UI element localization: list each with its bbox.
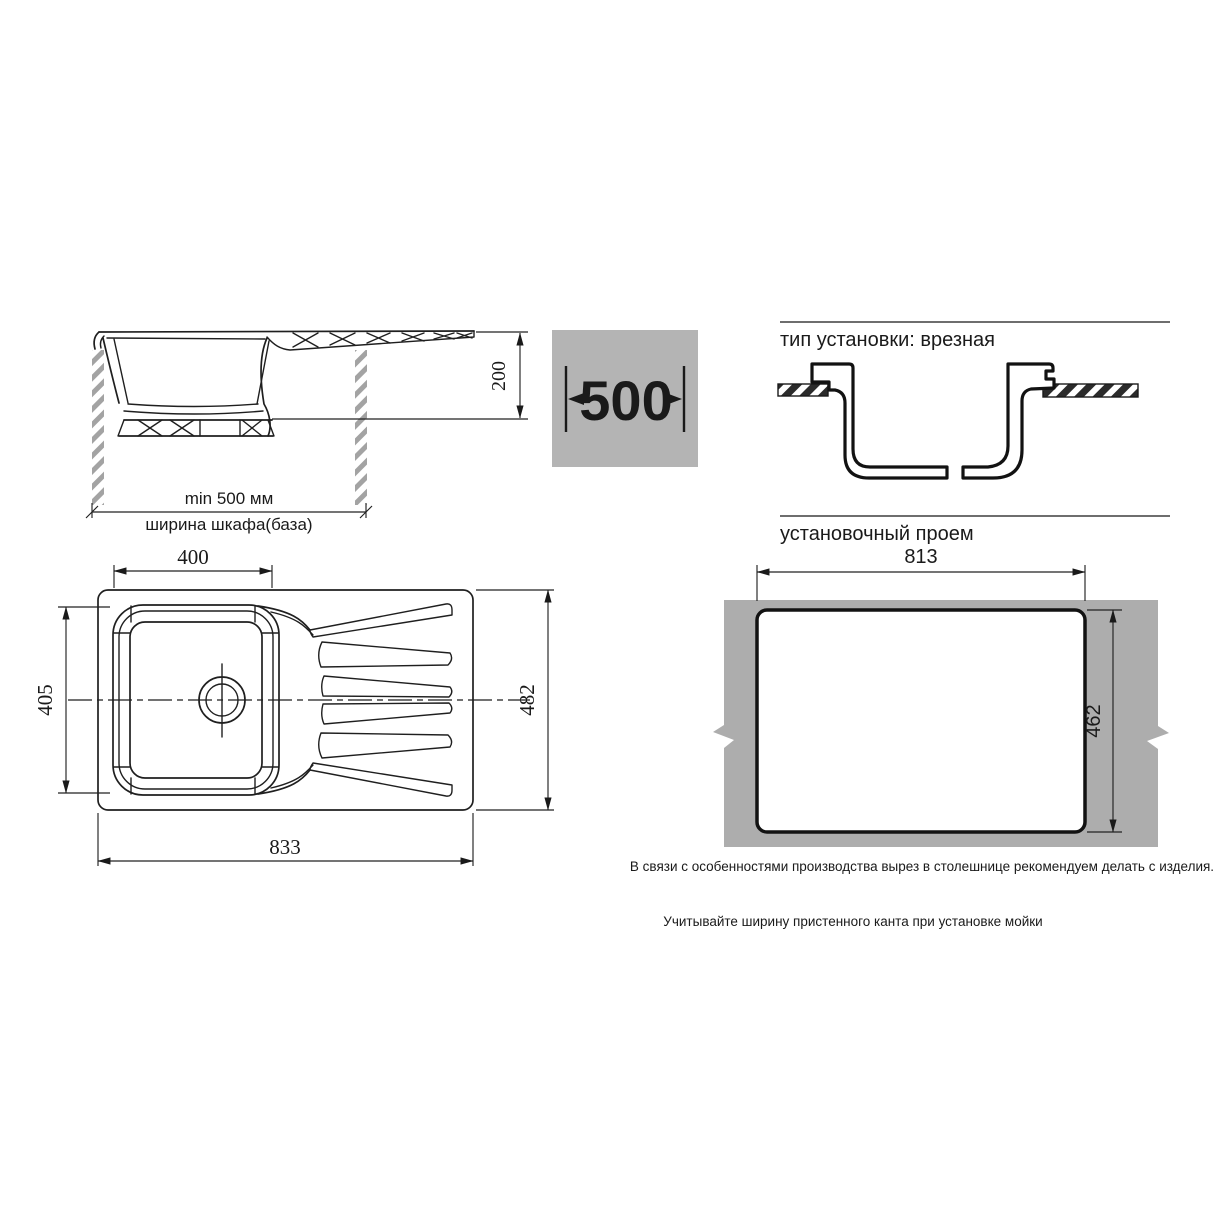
bowl-width-dimension: 400 bbox=[114, 545, 272, 588]
x-brace bbox=[138, 420, 162, 436]
cabinet-wall-right-hatch bbox=[355, 350, 367, 505]
x-brace bbox=[242, 420, 262, 436]
min-width-label: min 500 мм bbox=[185, 489, 274, 508]
opening-width-label: 813 bbox=[904, 546, 937, 568]
install-type-section: тип установки: врезная bbox=[778, 322, 1170, 478]
countertop-edge-left-hatch bbox=[778, 384, 828, 396]
opening-section: установочный проем 813 462 В связи с осо… bbox=[630, 516, 1214, 929]
x-brace bbox=[170, 420, 194, 436]
countertop-edge-right-hatch bbox=[1043, 384, 1138, 397]
bowl-width-label: 400 bbox=[177, 545, 209, 569]
depth-200-label: 200 bbox=[488, 361, 510, 391]
top-view-drawing: 400 405 482 833 bbox=[33, 545, 554, 866]
overall-width-label: 833 bbox=[269, 835, 301, 859]
sink-rim-top-line bbox=[99, 331, 474, 332]
cross-section-left-half bbox=[812, 364, 947, 478]
install-type-heading: тип установки: врезная bbox=[780, 329, 995, 351]
note-cutout: В связи с особенностями производства выр… bbox=[630, 859, 1214, 874]
cabinet-base-label: ширина шкафа(база) bbox=[145, 515, 312, 534]
cabinet-width-dimension: min 500 мм ширина шкафа(база) bbox=[86, 489, 372, 534]
note-edge: Учитывайте ширину пристенного канта при … bbox=[663, 914, 1042, 929]
opening-height-label: 462 bbox=[1083, 704, 1105, 737]
side-view-drawing: 200 min 500 мм ширина шкафа(база) bbox=[86, 331, 528, 534]
opening-heading: установочный проем bbox=[780, 523, 974, 545]
cutout-rect bbox=[757, 610, 1085, 832]
overall-width-dimension: 833 bbox=[98, 813, 473, 866]
diagram-canvas: 200 min 500 мм ширина шкафа(база) 500 ти… bbox=[0, 0, 1219, 1219]
bowl-depth-label: 405 bbox=[33, 684, 57, 716]
sink-installation-diagram: 200 min 500 мм ширина шкафа(база) 500 ти… bbox=[0, 0, 1219, 1219]
spacer-500-panel: 500 bbox=[552, 330, 698, 467]
cross-section-right-half bbox=[963, 364, 1054, 478]
opening-width-dimension: 813 bbox=[757, 546, 1085, 601]
depth-200-dimension: 200 bbox=[272, 332, 528, 419]
spacer-500-label: 500 bbox=[579, 369, 672, 432]
cabinet-wall-left-hatch bbox=[92, 350, 104, 505]
overall-depth-label: 482 bbox=[515, 684, 539, 716]
